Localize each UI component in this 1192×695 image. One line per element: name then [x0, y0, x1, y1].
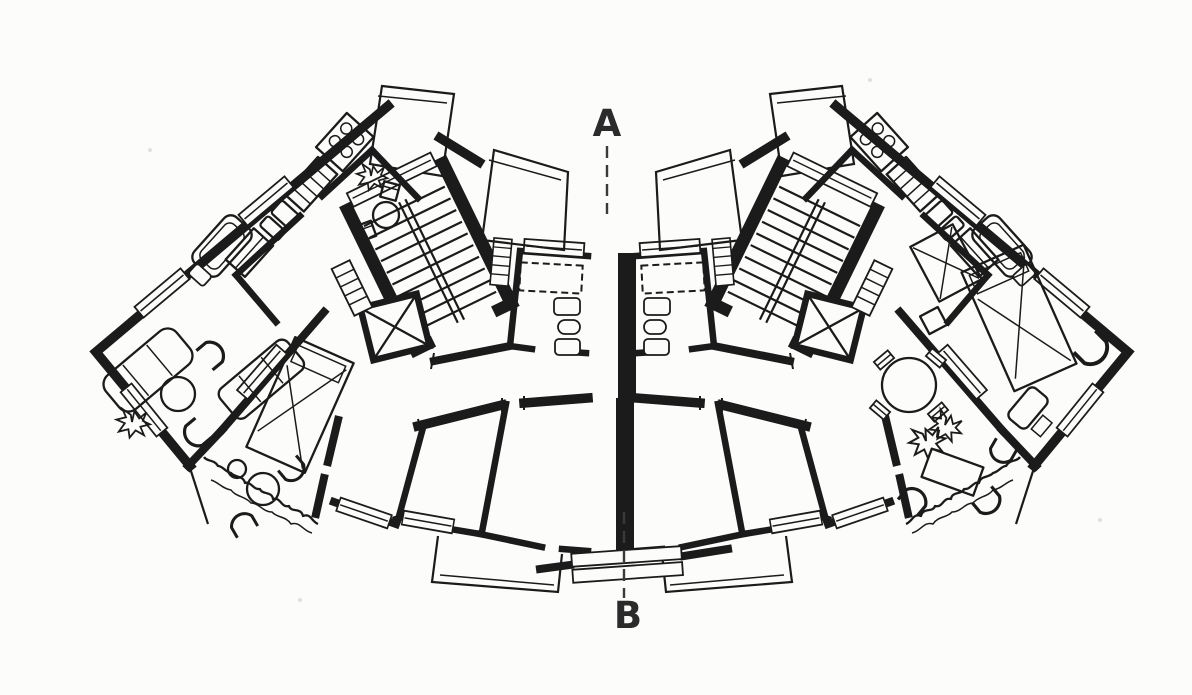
floor-plan-svg: A B — [0, 0, 1192, 695]
bench — [1006, 385, 1062, 441]
party-wall — [618, 253, 636, 401]
round-table — [161, 377, 195, 411]
right-wing — [636, 86, 1128, 592]
section-label-a: A — [593, 102, 622, 145]
round-table — [882, 358, 936, 412]
section-label-b: B — [614, 594, 642, 637]
party-wall — [616, 398, 634, 550]
balcony-table — [921, 449, 983, 496]
balcony-table — [247, 473, 279, 505]
floor-plan-sheet: A B — [0, 0, 1192, 695]
left-wing — [96, 86, 588, 592]
